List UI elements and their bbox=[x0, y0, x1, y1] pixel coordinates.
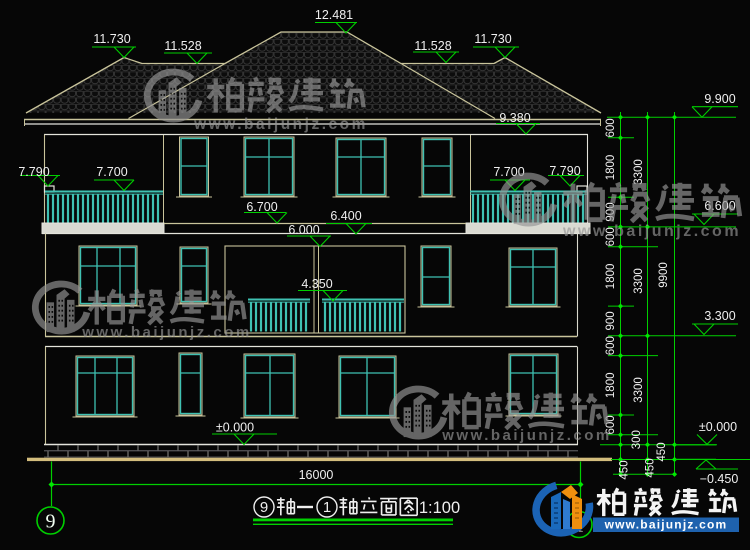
svg-text:7.790: 7.790 bbox=[18, 165, 49, 179]
svg-text:1:100: 1:100 bbox=[419, 499, 460, 517]
svg-text:±0.000: ±0.000 bbox=[216, 421, 254, 435]
svg-text:3300: 3300 bbox=[633, 377, 645, 403]
svg-text:900: 900 bbox=[605, 311, 617, 330]
svg-text:9: 9 bbox=[260, 499, 268, 516]
svg-text:7.790: 7.790 bbox=[549, 164, 580, 178]
svg-text:600: 600 bbox=[605, 118, 617, 137]
svg-text:−0.450: −0.450 bbox=[700, 472, 739, 486]
svg-text:11.730: 11.730 bbox=[93, 32, 130, 46]
svg-text:11.528: 11.528 bbox=[164, 39, 201, 53]
svg-text:3.300: 3.300 bbox=[704, 309, 735, 323]
svg-text:9900: 9900 bbox=[658, 262, 670, 288]
svg-text:450: 450 bbox=[619, 460, 631, 479]
svg-text:12.481: 12.481 bbox=[315, 8, 353, 22]
svg-text:6.400: 6.400 bbox=[330, 209, 361, 223]
svg-text:1800: 1800 bbox=[605, 264, 617, 290]
svg-text:11.730: 11.730 bbox=[474, 32, 511, 46]
svg-text:450: 450 bbox=[656, 442, 668, 461]
svg-text:7.700: 7.700 bbox=[96, 165, 127, 179]
svg-text:600: 600 bbox=[605, 336, 617, 355]
svg-text:6.000: 6.000 bbox=[288, 223, 319, 237]
svg-text:450: 450 bbox=[645, 458, 657, 477]
svg-text:www.baijunjz.com: www.baijunjz.com bbox=[81, 324, 251, 341]
svg-text:6.700: 6.700 bbox=[246, 200, 277, 214]
svg-text:16000: 16000 bbox=[299, 468, 334, 482]
svg-text:1800: 1800 bbox=[605, 373, 617, 399]
svg-text:4.350: 4.350 bbox=[301, 277, 332, 291]
svg-text:www.baijunjz.com: www.baijunjz.com bbox=[562, 223, 741, 240]
svg-text:±0.000: ±0.000 bbox=[699, 420, 737, 434]
svg-text:1800: 1800 bbox=[605, 155, 617, 181]
svg-text:9.380: 9.380 bbox=[499, 111, 530, 125]
svg-text:3300: 3300 bbox=[633, 268, 645, 294]
svg-text:11.528: 11.528 bbox=[414, 39, 451, 53]
svg-text:www.baijunjz.com: www.baijunjz.com bbox=[441, 427, 611, 444]
svg-text:www.baijunjz.com: www.baijunjz.com bbox=[604, 518, 728, 532]
svg-text:3300: 3300 bbox=[633, 159, 645, 185]
svg-text:1: 1 bbox=[323, 499, 331, 516]
svg-text:9.900: 9.900 bbox=[704, 92, 735, 106]
svg-text:300: 300 bbox=[631, 430, 643, 449]
svg-text:9: 9 bbox=[46, 511, 56, 533]
svg-text:www.baijunjz.com: www.baijunjz.com bbox=[193, 116, 368, 133]
